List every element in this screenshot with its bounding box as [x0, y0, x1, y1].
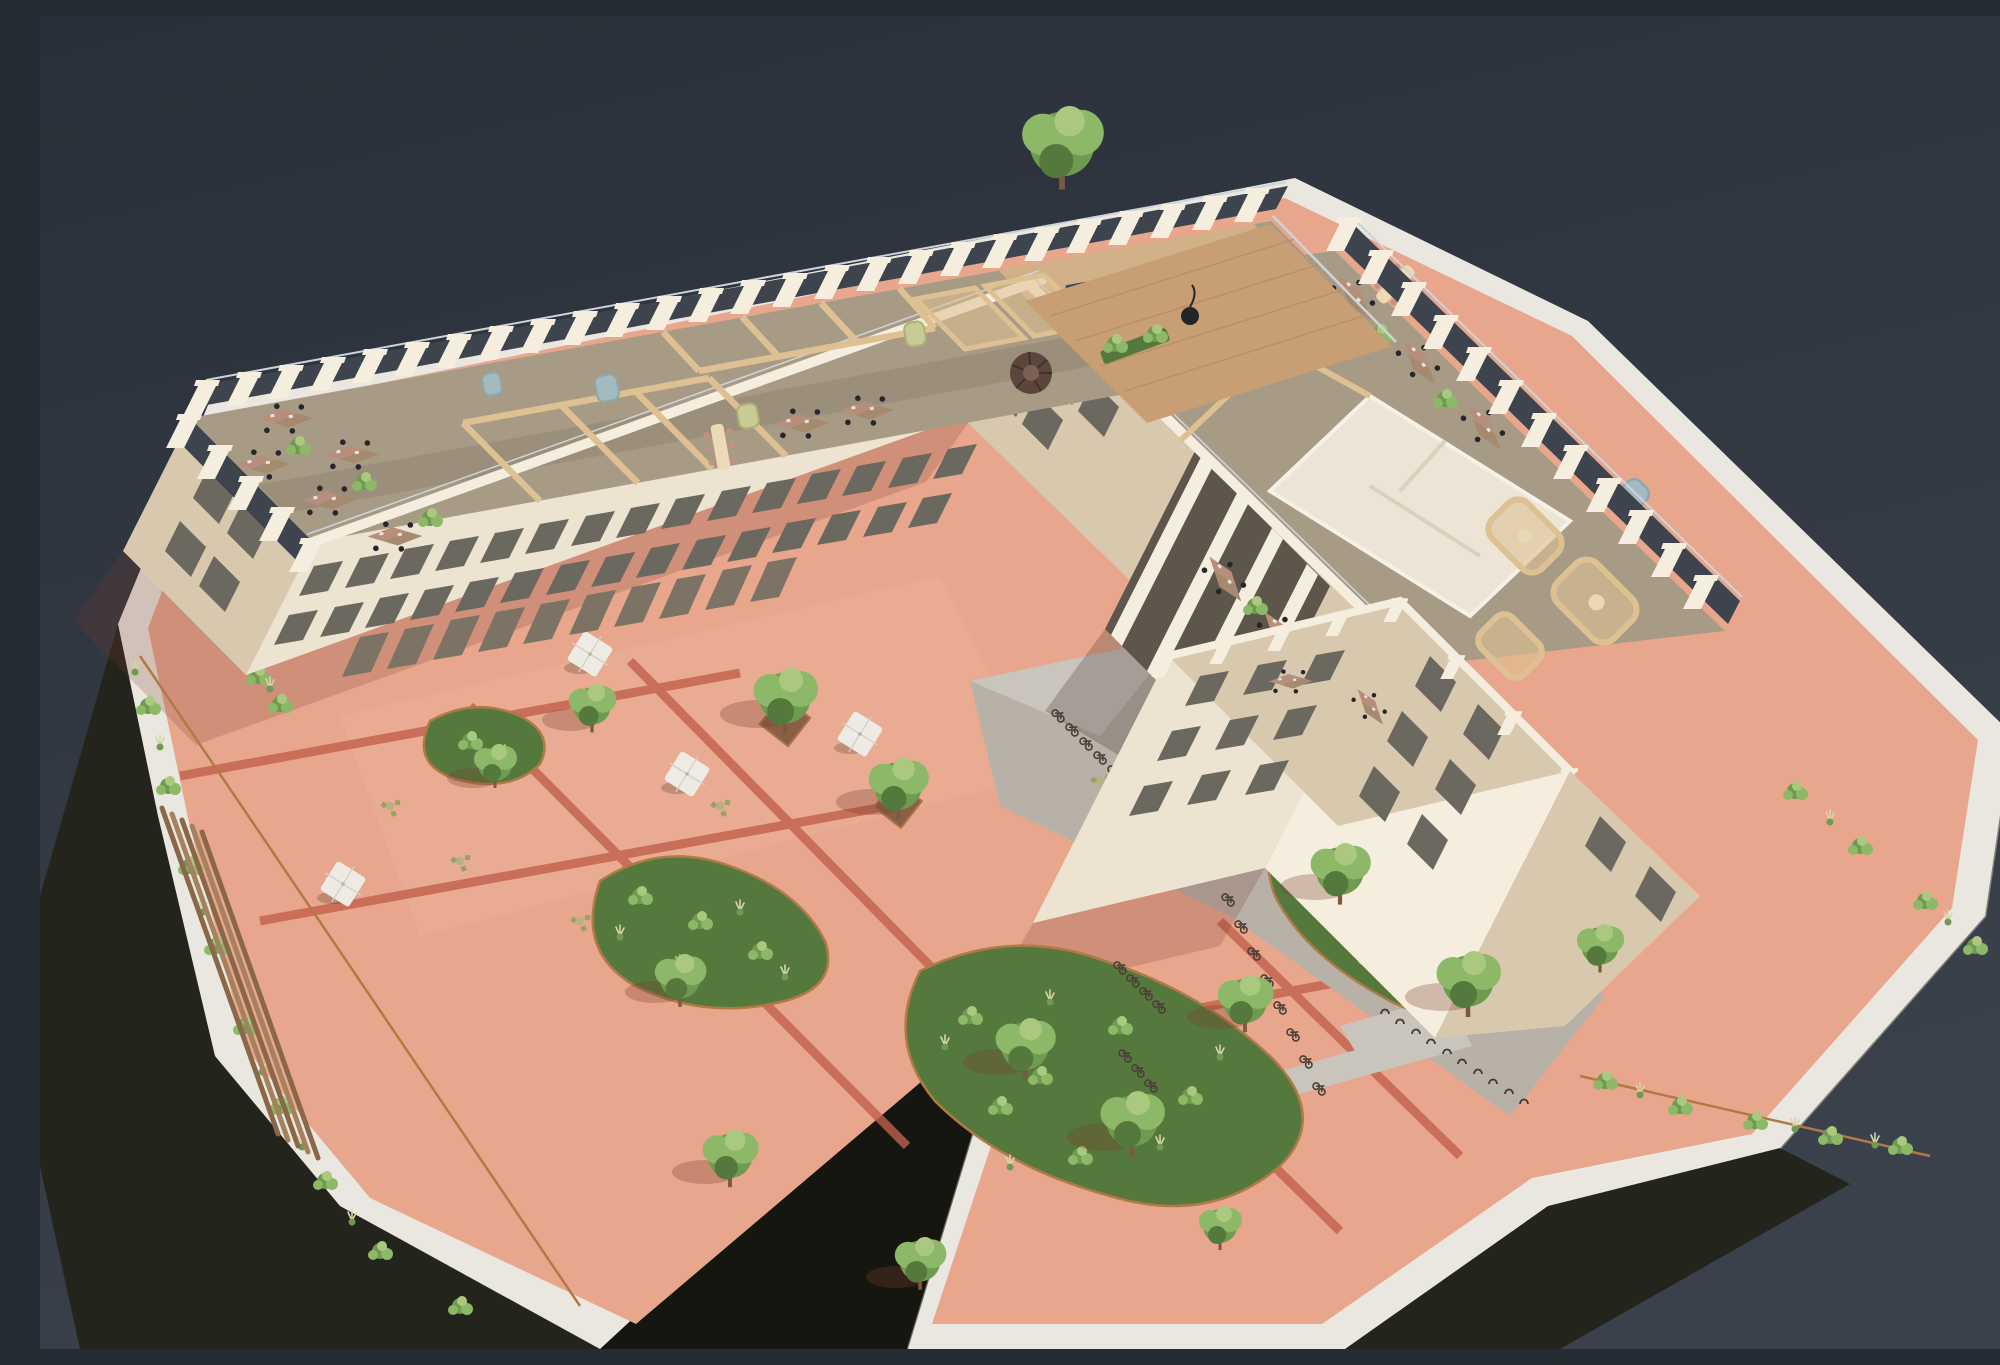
hanging-chair [1181, 307, 1199, 325]
axonometric-rendering: architectural 3D visualization [40, 16, 2000, 1349]
spiral-staircase [1010, 352, 1052, 394]
render-canvas: Aerial axonometric cutaway rendering of … [40, 16, 2000, 1349]
